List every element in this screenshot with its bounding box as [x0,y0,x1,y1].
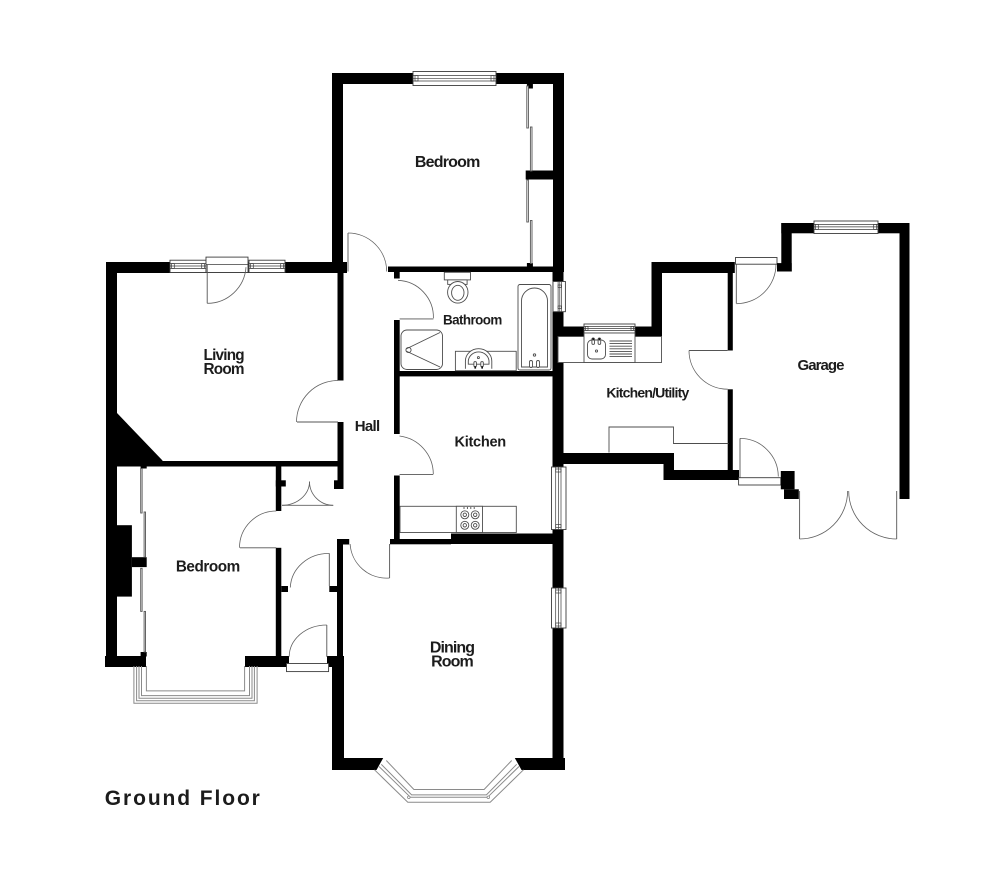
svg-text:Kitchen: Kitchen [454,435,506,451]
svg-text:Bathroom: Bathroom [443,313,502,328]
svg-text:Room: Room [431,653,473,670]
svg-text:Hall: Hall [355,418,380,435]
svg-text:Kitchen/Utility: Kitchen/Utility [606,384,689,400]
svg-text:Bedroom: Bedroom [176,558,240,575]
svg-text:Bedroom: Bedroom [415,154,480,171]
svg-text:Ground Floor: Ground Floor [105,787,262,810]
svg-text:Room: Room [203,361,243,378]
svg-text:Garage: Garage [797,357,844,374]
